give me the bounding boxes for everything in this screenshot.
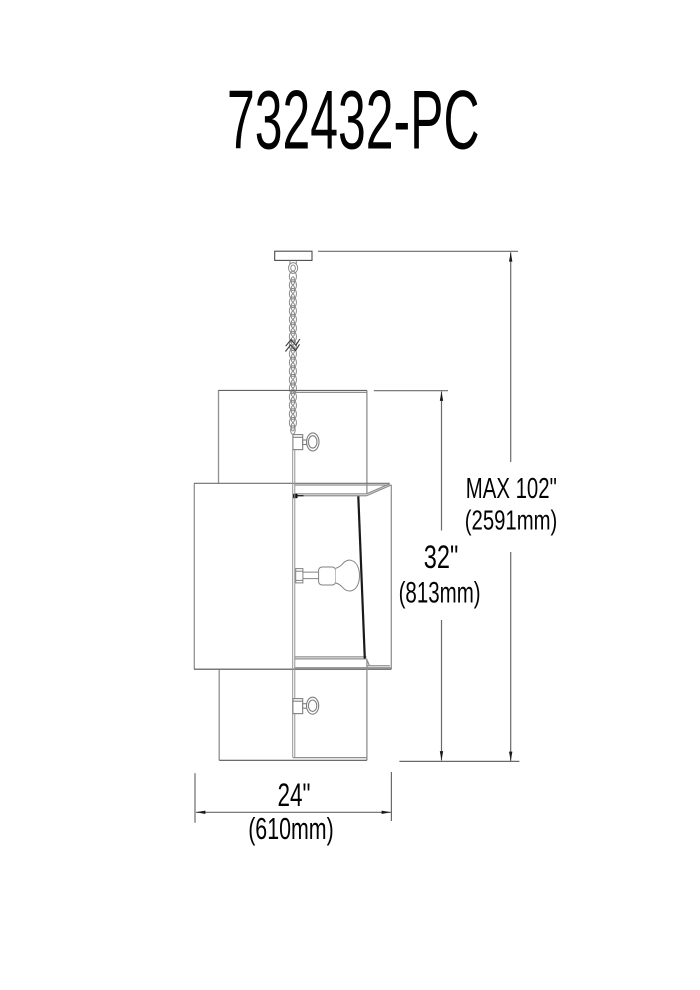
svg-text:MAX 102": MAX 102" [466,473,557,505]
svg-text:32": 32" [424,539,459,575]
svg-text:732432-PC: 732432-PC [227,73,480,167]
svg-text:24": 24" [278,777,311,813]
svg-text:(2591mm): (2591mm) [465,505,558,536]
svg-text:(610mm): (610mm) [248,811,334,846]
svg-text:(813mm): (813mm) [399,576,481,609]
